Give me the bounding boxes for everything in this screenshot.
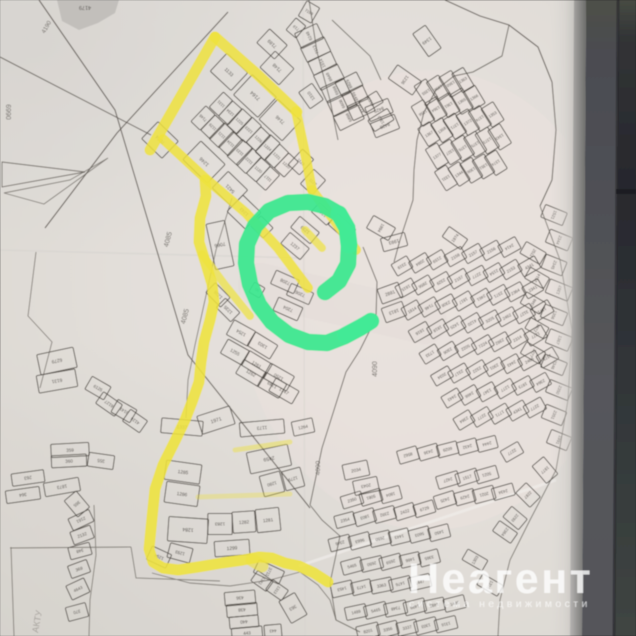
svg-text:0669: 0669 <box>6 104 13 120</box>
svg-text:4090: 4090 <box>315 460 322 475</box>
svg-text:4090: 4090 <box>372 361 379 377</box>
svg-text:1284: 1284 <box>182 526 194 533</box>
svg-text:Неагент: Неагент <box>408 555 593 603</box>
svg-text:1299: 1299 <box>227 545 238 552</box>
svg-text:1283: 1283 <box>214 521 225 526</box>
svg-text:4179: 4179 <box>79 4 91 10</box>
svg-text:360: 360 <box>65 458 73 463</box>
svg-text:443: 443 <box>269 628 277 634</box>
svg-text:1282: 1282 <box>239 519 250 525</box>
svg-text:1173: 1173 <box>256 424 267 431</box>
svg-text:359: 359 <box>66 447 74 452</box>
svg-text:443: 443 <box>243 630 252 636</box>
svg-text:440: 440 <box>240 619 249 625</box>
svg-text:438: 438 <box>238 607 247 613</box>
svg-text:система недвижимости: система недвижимости <box>409 598 591 610</box>
svg-text:436: 436 <box>236 595 245 601</box>
